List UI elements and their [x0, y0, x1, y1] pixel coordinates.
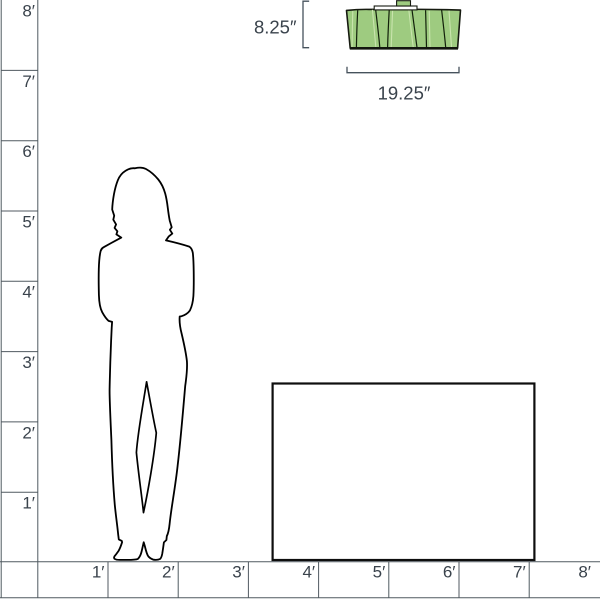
svg-text:6′: 6′ — [22, 142, 35, 161]
svg-text:4′: 4′ — [302, 563, 315, 582]
svg-text:8′: 8′ — [22, 1, 35, 20]
svg-text:4′: 4′ — [22, 283, 35, 302]
svg-text:5′: 5′ — [22, 212, 35, 231]
svg-text:1′: 1′ — [22, 494, 35, 513]
svg-text:1′: 1′ — [92, 563, 105, 582]
svg-text:7′: 7′ — [22, 72, 35, 91]
svg-text:2′: 2′ — [162, 563, 175, 582]
svg-text:8′: 8′ — [578, 563, 591, 582]
svg-text:7′: 7′ — [513, 563, 526, 582]
svg-text:8.25″: 8.25″ — [254, 17, 297, 38]
svg-text:3′: 3′ — [232, 563, 245, 582]
svg-text:6′: 6′ — [443, 563, 456, 582]
svg-text:19.25″: 19.25″ — [378, 83, 431, 104]
svg-text:5′: 5′ — [373, 563, 386, 582]
svg-text:2′: 2′ — [22, 423, 35, 442]
svg-text:3′: 3′ — [22, 353, 35, 372]
